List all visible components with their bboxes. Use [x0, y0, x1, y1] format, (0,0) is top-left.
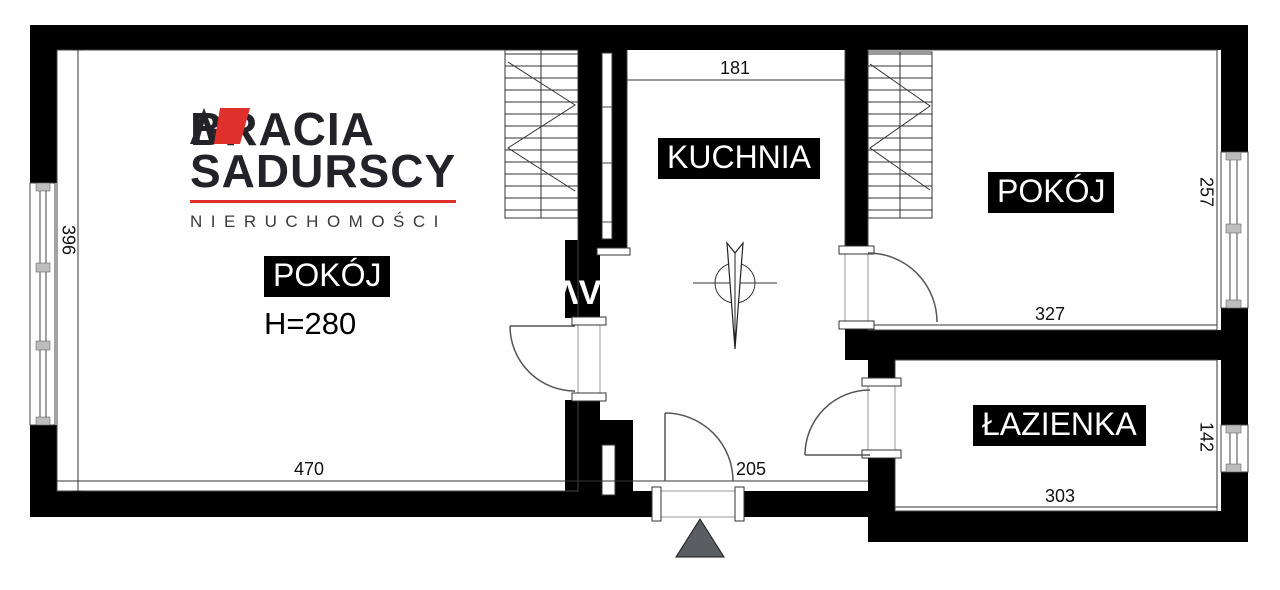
dim-bathroom-width: 303: [1045, 486, 1075, 507]
floor-plan: ΛV: [0, 0, 1280, 590]
logo-tagline: NIERUCHOMOŚCI: [190, 212, 456, 232]
door-entrance: [665, 413, 733, 481]
logo-rule: [190, 200, 456, 203]
dim-hall-width: 205: [736, 459, 766, 480]
label-room1-height: H=280: [264, 306, 356, 342]
door-room2: [868, 253, 937, 322]
dim-bathroom-height: 142: [1196, 422, 1217, 452]
logo-line2: SADURSCY: [190, 150, 456, 192]
entrance-marker-icon: [676, 519, 724, 557]
label-room1: POKÓJ: [264, 256, 390, 297]
dim-kitchen-width: 181: [720, 58, 750, 79]
wardrobe-room2: [868, 52, 932, 218]
label-room2: POKÓJ: [988, 172, 1114, 213]
watermark: ΛV: [556, 274, 602, 312]
dim-room1-height: 396: [58, 225, 79, 255]
door-bathroom: [805, 390, 870, 455]
label-kitchen: KUCHNIA: [658, 138, 820, 179]
floor-plan-drawing: ΛV: [0, 0, 1280, 590]
wardrobe-room1: [505, 50, 578, 218]
door-room1: [510, 326, 575, 391]
agency-logo: BRACIA SADURSCY NIERUCHOMOŚCI: [190, 108, 456, 232]
window-left: [30, 183, 55, 425]
label-bathroom: ŁAZIENKA: [973, 405, 1146, 446]
logo-mark-icon: [190, 108, 250, 144]
north-arrow-icon: [693, 243, 777, 349]
dim-room1-width: 470: [294, 459, 324, 480]
dim-room2-width: 327: [1035, 304, 1065, 325]
window-room2: [1221, 152, 1248, 308]
dim-room2-height: 257: [1196, 177, 1217, 207]
window-bathroom: [1221, 425, 1248, 472]
duct-hall: [602, 445, 615, 495]
duct-kitchen: [602, 53, 612, 239]
